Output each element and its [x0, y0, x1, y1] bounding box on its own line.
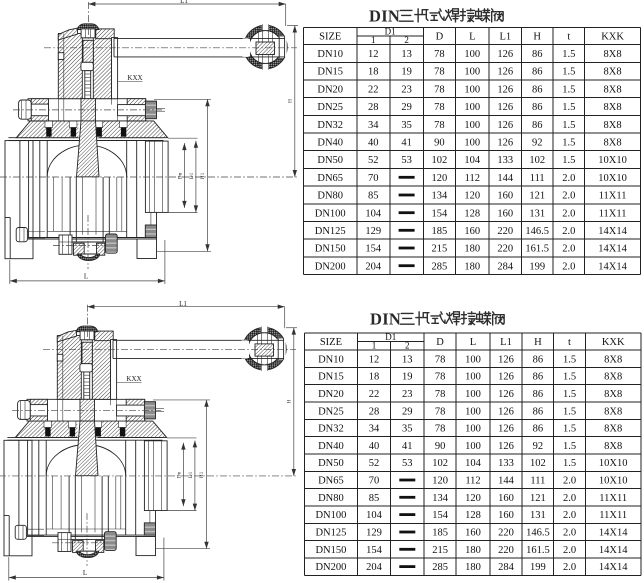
svg-text:70: 70: [368, 173, 379, 184]
svg-text:86: 86: [532, 49, 543, 60]
svg-text:29: 29: [401, 102, 412, 113]
svg-text:35: 35: [402, 424, 413, 435]
svg-text:160: 160: [497, 191, 513, 202]
svg-text:126: 126: [498, 372, 514, 383]
svg-text:100: 100: [465, 424, 481, 435]
svg-text:92: 92: [532, 138, 543, 149]
svg-text:86: 86: [533, 406, 544, 417]
svg-text:DN80: DN80: [318, 493, 344, 504]
svg-text:52: 52: [368, 155, 379, 166]
svg-text:161.5: 161.5: [526, 545, 550, 556]
svg-text:DN32: DN32: [318, 424, 344, 435]
svg-text:2: 2: [404, 35, 409, 45]
svg-text:144: 144: [498, 476, 515, 487]
svg-text:180: 180: [464, 244, 480, 255]
svg-text:154: 154: [432, 510, 449, 521]
svg-text:1.5: 1.5: [563, 406, 576, 417]
svg-text:120: 120: [464, 191, 480, 202]
svg-text:DN200: DN200: [315, 562, 346, 573]
svg-text:100: 100: [464, 102, 480, 113]
svg-text:DN65: DN65: [318, 476, 344, 487]
svg-text:41: 41: [401, 138, 412, 149]
svg-text:28: 28: [369, 406, 380, 417]
svg-text:H: H: [288, 99, 294, 103]
svg-text:134: 134: [432, 191, 449, 202]
svg-text:78: 78: [434, 102, 445, 113]
svg-text:11X11: 11X11: [599, 208, 627, 219]
svg-text:10X10: 10X10: [599, 476, 628, 487]
svg-text:8X8: 8X8: [604, 424, 622, 435]
svg-text:29: 29: [402, 406, 413, 417]
svg-text:104: 104: [366, 510, 383, 521]
svg-text:1: 1: [371, 35, 376, 45]
svg-text:DN80: DN80: [317, 191, 343, 202]
svg-text:129: 129: [365, 226, 381, 237]
svg-text:DN65: DN65: [317, 173, 343, 184]
svg-text:14X14: 14X14: [598, 261, 627, 272]
svg-text:154: 154: [366, 545, 383, 556]
svg-text:34: 34: [369, 424, 380, 435]
svg-text:100: 100: [465, 406, 481, 417]
svg-text:DN150: DN150: [315, 545, 346, 556]
svg-text:H1: H1: [199, 471, 205, 478]
svg-text:t: t: [567, 32, 570, 43]
svg-text:154: 154: [365, 244, 382, 255]
svg-text:120: 120: [432, 476, 448, 487]
svg-text:86: 86: [533, 389, 544, 400]
svg-text:199: 199: [530, 562, 546, 573]
svg-text:85: 85: [368, 191, 379, 202]
svg-text:126: 126: [498, 389, 514, 400]
svg-text:100: 100: [464, 49, 480, 60]
svg-text:144: 144: [497, 173, 514, 184]
svg-text:1.5: 1.5: [562, 120, 575, 131]
svg-text:199: 199: [529, 261, 545, 272]
svg-text:1.5: 1.5: [562, 67, 575, 78]
svg-text:86: 86: [533, 424, 544, 435]
svg-text:2.0: 2.0: [562, 191, 575, 202]
svg-text:23: 23: [402, 389, 413, 400]
svg-text:H: H: [533, 32, 541, 43]
svg-text:126: 126: [497, 120, 513, 131]
svg-text:220: 220: [498, 545, 514, 556]
svg-text:8X8: 8X8: [604, 406, 622, 417]
svg-text:111: 111: [530, 173, 545, 184]
svg-text:DN150: DN150: [315, 244, 346, 255]
svg-text:10X10: 10X10: [598, 173, 627, 184]
svg-text:126: 126: [498, 406, 514, 417]
svg-text:100: 100: [465, 389, 481, 400]
svg-text:160: 160: [465, 528, 481, 539]
svg-text:SIZE: SIZE: [319, 32, 341, 43]
svg-text:154: 154: [432, 208, 449, 219]
svg-text:102: 102: [432, 458, 448, 469]
svg-text:DN20: DN20: [318, 389, 344, 400]
svg-text:92: 92: [533, 441, 544, 452]
svg-text:DIN: DIN: [370, 309, 401, 328]
svg-text:126: 126: [497, 49, 513, 60]
svg-text:2.0: 2.0: [563, 528, 576, 539]
svg-text:1.5: 1.5: [563, 458, 576, 469]
svg-text:78: 78: [435, 424, 446, 435]
svg-text:1: 1: [372, 341, 377, 351]
svg-text:14X14: 14X14: [599, 562, 628, 573]
svg-text:2.0: 2.0: [563, 510, 576, 521]
svg-text:40: 40: [369, 441, 380, 452]
svg-text:2.0: 2.0: [563, 476, 576, 487]
svg-text:L1: L1: [500, 337, 512, 348]
svg-text:100: 100: [464, 67, 480, 78]
svg-text:78: 78: [434, 84, 445, 95]
svg-text:2.0: 2.0: [562, 261, 575, 272]
svg-text:L: L: [83, 570, 87, 577]
svg-text:134: 134: [432, 493, 449, 504]
svg-text:126: 126: [497, 102, 513, 113]
svg-text:121: 121: [530, 493, 546, 504]
svg-text:78: 78: [434, 49, 445, 60]
svg-text:8X8: 8X8: [604, 372, 622, 383]
svg-text:160: 160: [498, 493, 514, 504]
svg-text:78: 78: [435, 389, 446, 400]
svg-text:78: 78: [435, 372, 446, 383]
svg-text:86: 86: [533, 354, 544, 365]
svg-text:DN10: DN10: [318, 354, 344, 365]
svg-text:78: 78: [434, 67, 445, 78]
svg-text:Dn: Dn: [177, 471, 183, 478]
svg-text:126: 126: [498, 354, 514, 365]
svg-text:11X11: 11X11: [599, 493, 627, 504]
svg-text:D1: D1: [385, 27, 396, 37]
svg-text:41: 41: [402, 441, 413, 452]
svg-text:D1: D1: [188, 471, 194, 478]
svg-text:2.0: 2.0: [562, 208, 575, 219]
svg-text:10X10: 10X10: [598, 155, 627, 166]
svg-text:215: 215: [432, 244, 448, 255]
svg-text:86: 86: [532, 84, 543, 95]
svg-text:180: 180: [465, 545, 481, 556]
svg-text:86: 86: [533, 372, 544, 383]
svg-text:102: 102: [530, 458, 546, 469]
svg-text:78: 78: [435, 354, 446, 365]
svg-text:204: 204: [366, 562, 383, 573]
svg-text:D1: D1: [189, 172, 195, 179]
svg-text:19: 19: [401, 67, 412, 78]
svg-text:285: 285: [432, 562, 448, 573]
svg-text:14X14: 14X14: [599, 545, 628, 556]
svg-text:L: L: [84, 273, 88, 281]
svg-text:120: 120: [432, 173, 448, 184]
svg-text:8X8: 8X8: [604, 389, 622, 400]
svg-text:100: 100: [464, 120, 480, 131]
svg-text:1.5: 1.5: [562, 138, 575, 149]
svg-text:160: 160: [497, 208, 513, 219]
svg-text:2.0: 2.0: [562, 173, 575, 184]
svg-text:126: 126: [497, 67, 513, 78]
svg-text:8X8: 8X8: [604, 102, 622, 113]
svg-text:KXX: KXX: [127, 74, 142, 82]
svg-text:L: L: [469, 32, 475, 43]
svg-text:11X11: 11X11: [599, 510, 627, 521]
svg-text:90: 90: [435, 441, 446, 452]
svg-text:86: 86: [532, 102, 543, 113]
svg-text:160: 160: [464, 226, 480, 237]
svg-text:DN100: DN100: [315, 208, 346, 219]
svg-text:86: 86: [532, 120, 543, 131]
svg-text:85: 85: [369, 493, 380, 504]
svg-text:160: 160: [498, 510, 514, 521]
svg-text:1.5: 1.5: [563, 424, 576, 435]
svg-text:220: 220: [497, 244, 513, 255]
svg-text:104: 104: [365, 208, 382, 219]
svg-text:DN25: DN25: [317, 102, 343, 113]
svg-text:1.5: 1.5: [563, 354, 576, 365]
svg-text:18: 18: [368, 67, 379, 78]
svg-text:Dn: Dn: [178, 172, 184, 179]
svg-text:104: 104: [464, 155, 481, 166]
svg-text:1.5: 1.5: [562, 49, 575, 60]
svg-text:DN15: DN15: [317, 67, 343, 78]
svg-text:1.5: 1.5: [562, 155, 575, 166]
svg-text:52: 52: [369, 458, 380, 469]
svg-text:H1: H1: [200, 172, 206, 179]
svg-text:70: 70: [369, 476, 380, 487]
svg-text:t: t: [568, 337, 571, 348]
svg-text:SIZE: SIZE: [320, 337, 342, 348]
svg-text:131: 131: [529, 208, 545, 219]
svg-text:133: 133: [497, 155, 513, 166]
svg-text:102: 102: [432, 155, 448, 166]
svg-text:L: L: [470, 337, 476, 348]
svg-text:161.5: 161.5: [525, 244, 549, 255]
svg-text:DN10: DN10: [317, 49, 343, 60]
svg-text:180: 180: [465, 562, 481, 573]
svg-text:8X8: 8X8: [604, 49, 622, 60]
svg-text:78: 78: [435, 406, 446, 417]
svg-text:285: 285: [432, 261, 448, 272]
svg-text:DN125: DN125: [315, 226, 346, 237]
svg-text:86: 86: [532, 67, 543, 78]
svg-text:14X14: 14X14: [598, 226, 627, 237]
svg-text:100: 100: [465, 441, 481, 452]
svg-text:120: 120: [465, 493, 481, 504]
svg-text:90: 90: [434, 138, 445, 149]
svg-text:53: 53: [401, 155, 412, 166]
svg-text:284: 284: [498, 562, 515, 573]
svg-text:28: 28: [368, 102, 379, 113]
svg-text:1.5: 1.5: [563, 389, 576, 400]
svg-text:129: 129: [366, 528, 382, 539]
svg-text:8X8: 8X8: [604, 67, 622, 78]
svg-text:121: 121: [529, 191, 545, 202]
svg-text:112: 112: [465, 476, 480, 487]
svg-text:128: 128: [464, 208, 480, 219]
svg-text:2: 2: [405, 341, 410, 351]
svg-text:8X8: 8X8: [604, 84, 622, 95]
svg-text:DN20: DN20: [317, 84, 343, 95]
svg-text:1.5: 1.5: [562, 84, 575, 95]
svg-text:8X8: 8X8: [604, 120, 622, 131]
svg-text:204: 204: [365, 261, 382, 272]
svg-text:23: 23: [401, 84, 412, 95]
svg-text:DN100: DN100: [315, 510, 346, 521]
svg-text:185: 185: [432, 226, 448, 237]
svg-text:215: 215: [432, 545, 448, 556]
svg-text:L1: L1: [179, 301, 187, 308]
svg-text:DN50: DN50: [318, 458, 344, 469]
svg-text:8X8: 8X8: [604, 354, 622, 365]
svg-text:2.0: 2.0: [563, 562, 576, 573]
svg-text:220: 220: [497, 226, 513, 237]
svg-text:DN15: DN15: [318, 372, 344, 383]
svg-text:40: 40: [368, 138, 379, 149]
svg-text:DN125: DN125: [315, 528, 346, 539]
svg-text:126: 126: [497, 138, 513, 149]
svg-text:D: D: [436, 337, 444, 348]
svg-text:146.5: 146.5: [526, 528, 550, 539]
svg-text:111: 111: [530, 476, 545, 487]
svg-text:284: 284: [497, 261, 514, 272]
svg-text:35: 35: [401, 120, 412, 131]
svg-text:L1: L1: [499, 32, 511, 43]
svg-text:2.0: 2.0: [562, 226, 575, 237]
svg-text:L1: L1: [180, 0, 188, 5]
svg-text:146.5: 146.5: [525, 226, 549, 237]
svg-text:100: 100: [464, 84, 480, 95]
svg-text:KXX: KXX: [126, 376, 141, 383]
svg-text:22: 22: [368, 84, 379, 95]
svg-text:126: 126: [497, 84, 513, 95]
svg-text:2.0: 2.0: [562, 244, 575, 255]
svg-text:22: 22: [369, 389, 380, 400]
svg-text:126: 126: [498, 424, 514, 435]
svg-text:14X14: 14X14: [599, 528, 628, 539]
svg-text:H: H: [534, 337, 542, 348]
svg-text:8X8: 8X8: [604, 138, 622, 149]
svg-text:14X14: 14X14: [598, 244, 627, 255]
svg-text:13: 13: [402, 354, 413, 365]
svg-text:DN40: DN40: [318, 441, 344, 452]
svg-text:102: 102: [529, 155, 545, 166]
svg-text:2.0: 2.0: [563, 493, 576, 504]
svg-text:180: 180: [464, 261, 480, 272]
svg-text:DN25: DN25: [318, 406, 344, 417]
svg-text:DN40: DN40: [317, 138, 343, 149]
svg-text:104: 104: [465, 458, 482, 469]
svg-text:11X11: 11X11: [599, 191, 627, 202]
svg-text:KXK: KXK: [601, 32, 624, 43]
svg-text:133: 133: [498, 458, 514, 469]
svg-text:128: 128: [465, 510, 481, 521]
svg-text:DIN: DIN: [369, 7, 400, 26]
svg-text:185: 185: [432, 528, 448, 539]
svg-text:DN32: DN32: [317, 120, 343, 131]
svg-text:DN200: DN200: [315, 261, 346, 272]
svg-text:KXK: KXK: [602, 337, 625, 348]
svg-text:100: 100: [464, 138, 480, 149]
svg-text:12: 12: [368, 49, 379, 60]
svg-text:D: D: [436, 32, 444, 43]
svg-text:220: 220: [498, 528, 514, 539]
svg-text:1.5: 1.5: [562, 102, 575, 113]
svg-text:112: 112: [465, 173, 480, 184]
svg-text:D1: D1: [385, 332, 396, 342]
svg-text:8X8: 8X8: [604, 441, 622, 452]
svg-text:34: 34: [368, 120, 379, 131]
svg-text:1.5: 1.5: [563, 372, 576, 383]
svg-text:DN50: DN50: [317, 155, 343, 166]
svg-text:53: 53: [402, 458, 413, 469]
svg-text:13: 13: [401, 49, 412, 60]
svg-text:100: 100: [465, 372, 481, 383]
svg-text:1.5: 1.5: [563, 441, 576, 452]
svg-text:18: 18: [369, 372, 380, 383]
svg-text:19: 19: [402, 372, 413, 383]
svg-text:H: H: [286, 400, 292, 404]
svg-text:78: 78: [434, 120, 445, 131]
svg-text:131: 131: [530, 510, 546, 521]
svg-text:126: 126: [498, 441, 514, 452]
svg-text:100: 100: [465, 354, 481, 365]
svg-text:12: 12: [369, 354, 380, 365]
svg-text:10X10: 10X10: [599, 458, 628, 469]
svg-text:2.0: 2.0: [563, 545, 576, 556]
